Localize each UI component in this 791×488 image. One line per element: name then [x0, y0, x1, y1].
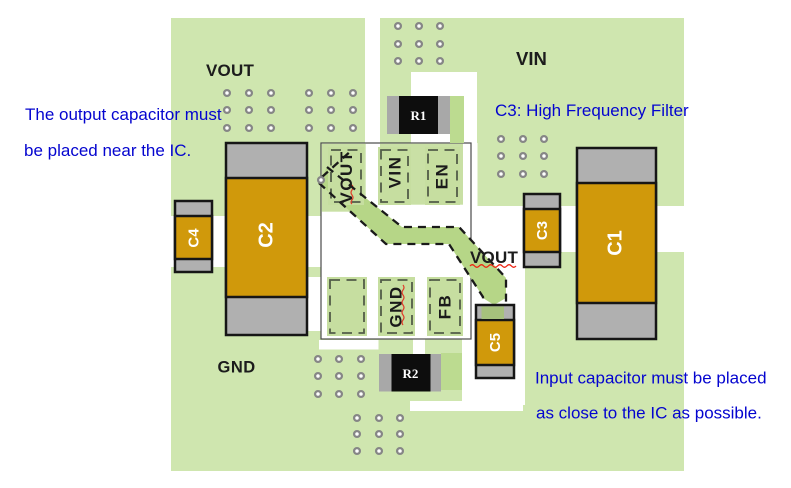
- svg-text:VOUT: VOUT: [470, 248, 518, 267]
- svg-text:VIN: VIN: [516, 48, 547, 69]
- svg-text:GND: GND: [218, 359, 256, 377]
- svg-text:R1: R1: [411, 108, 427, 123]
- svg-text:R2: R2: [403, 366, 419, 381]
- svg-text:be placed near the IC.: be placed near the IC.: [24, 141, 191, 160]
- svg-text:The output capacitor must: The output capacitor must: [25, 105, 222, 124]
- svg-text:C4: C4: [186, 228, 203, 248]
- svg-text:C5: C5: [487, 333, 504, 352]
- svg-text:C3: High Frequency Filter: C3: High Frequency Filter: [495, 101, 689, 120]
- svg-text:VOUT: VOUT: [206, 61, 254, 80]
- svg-text:C2: C2: [256, 222, 278, 248]
- svg-text:C3: C3: [534, 221, 551, 240]
- svg-text:EN: EN: [433, 163, 452, 190]
- svg-text:C1: C1: [605, 230, 627, 256]
- svg-text:FB: FB: [436, 294, 455, 320]
- svg-text:Input capacitor must be placed: Input capacitor must be placed: [535, 369, 767, 388]
- svg-text:VIN: VIN: [386, 156, 405, 189]
- svg-text:as close to the IC as possible: as close to the IC as possible.: [536, 404, 762, 423]
